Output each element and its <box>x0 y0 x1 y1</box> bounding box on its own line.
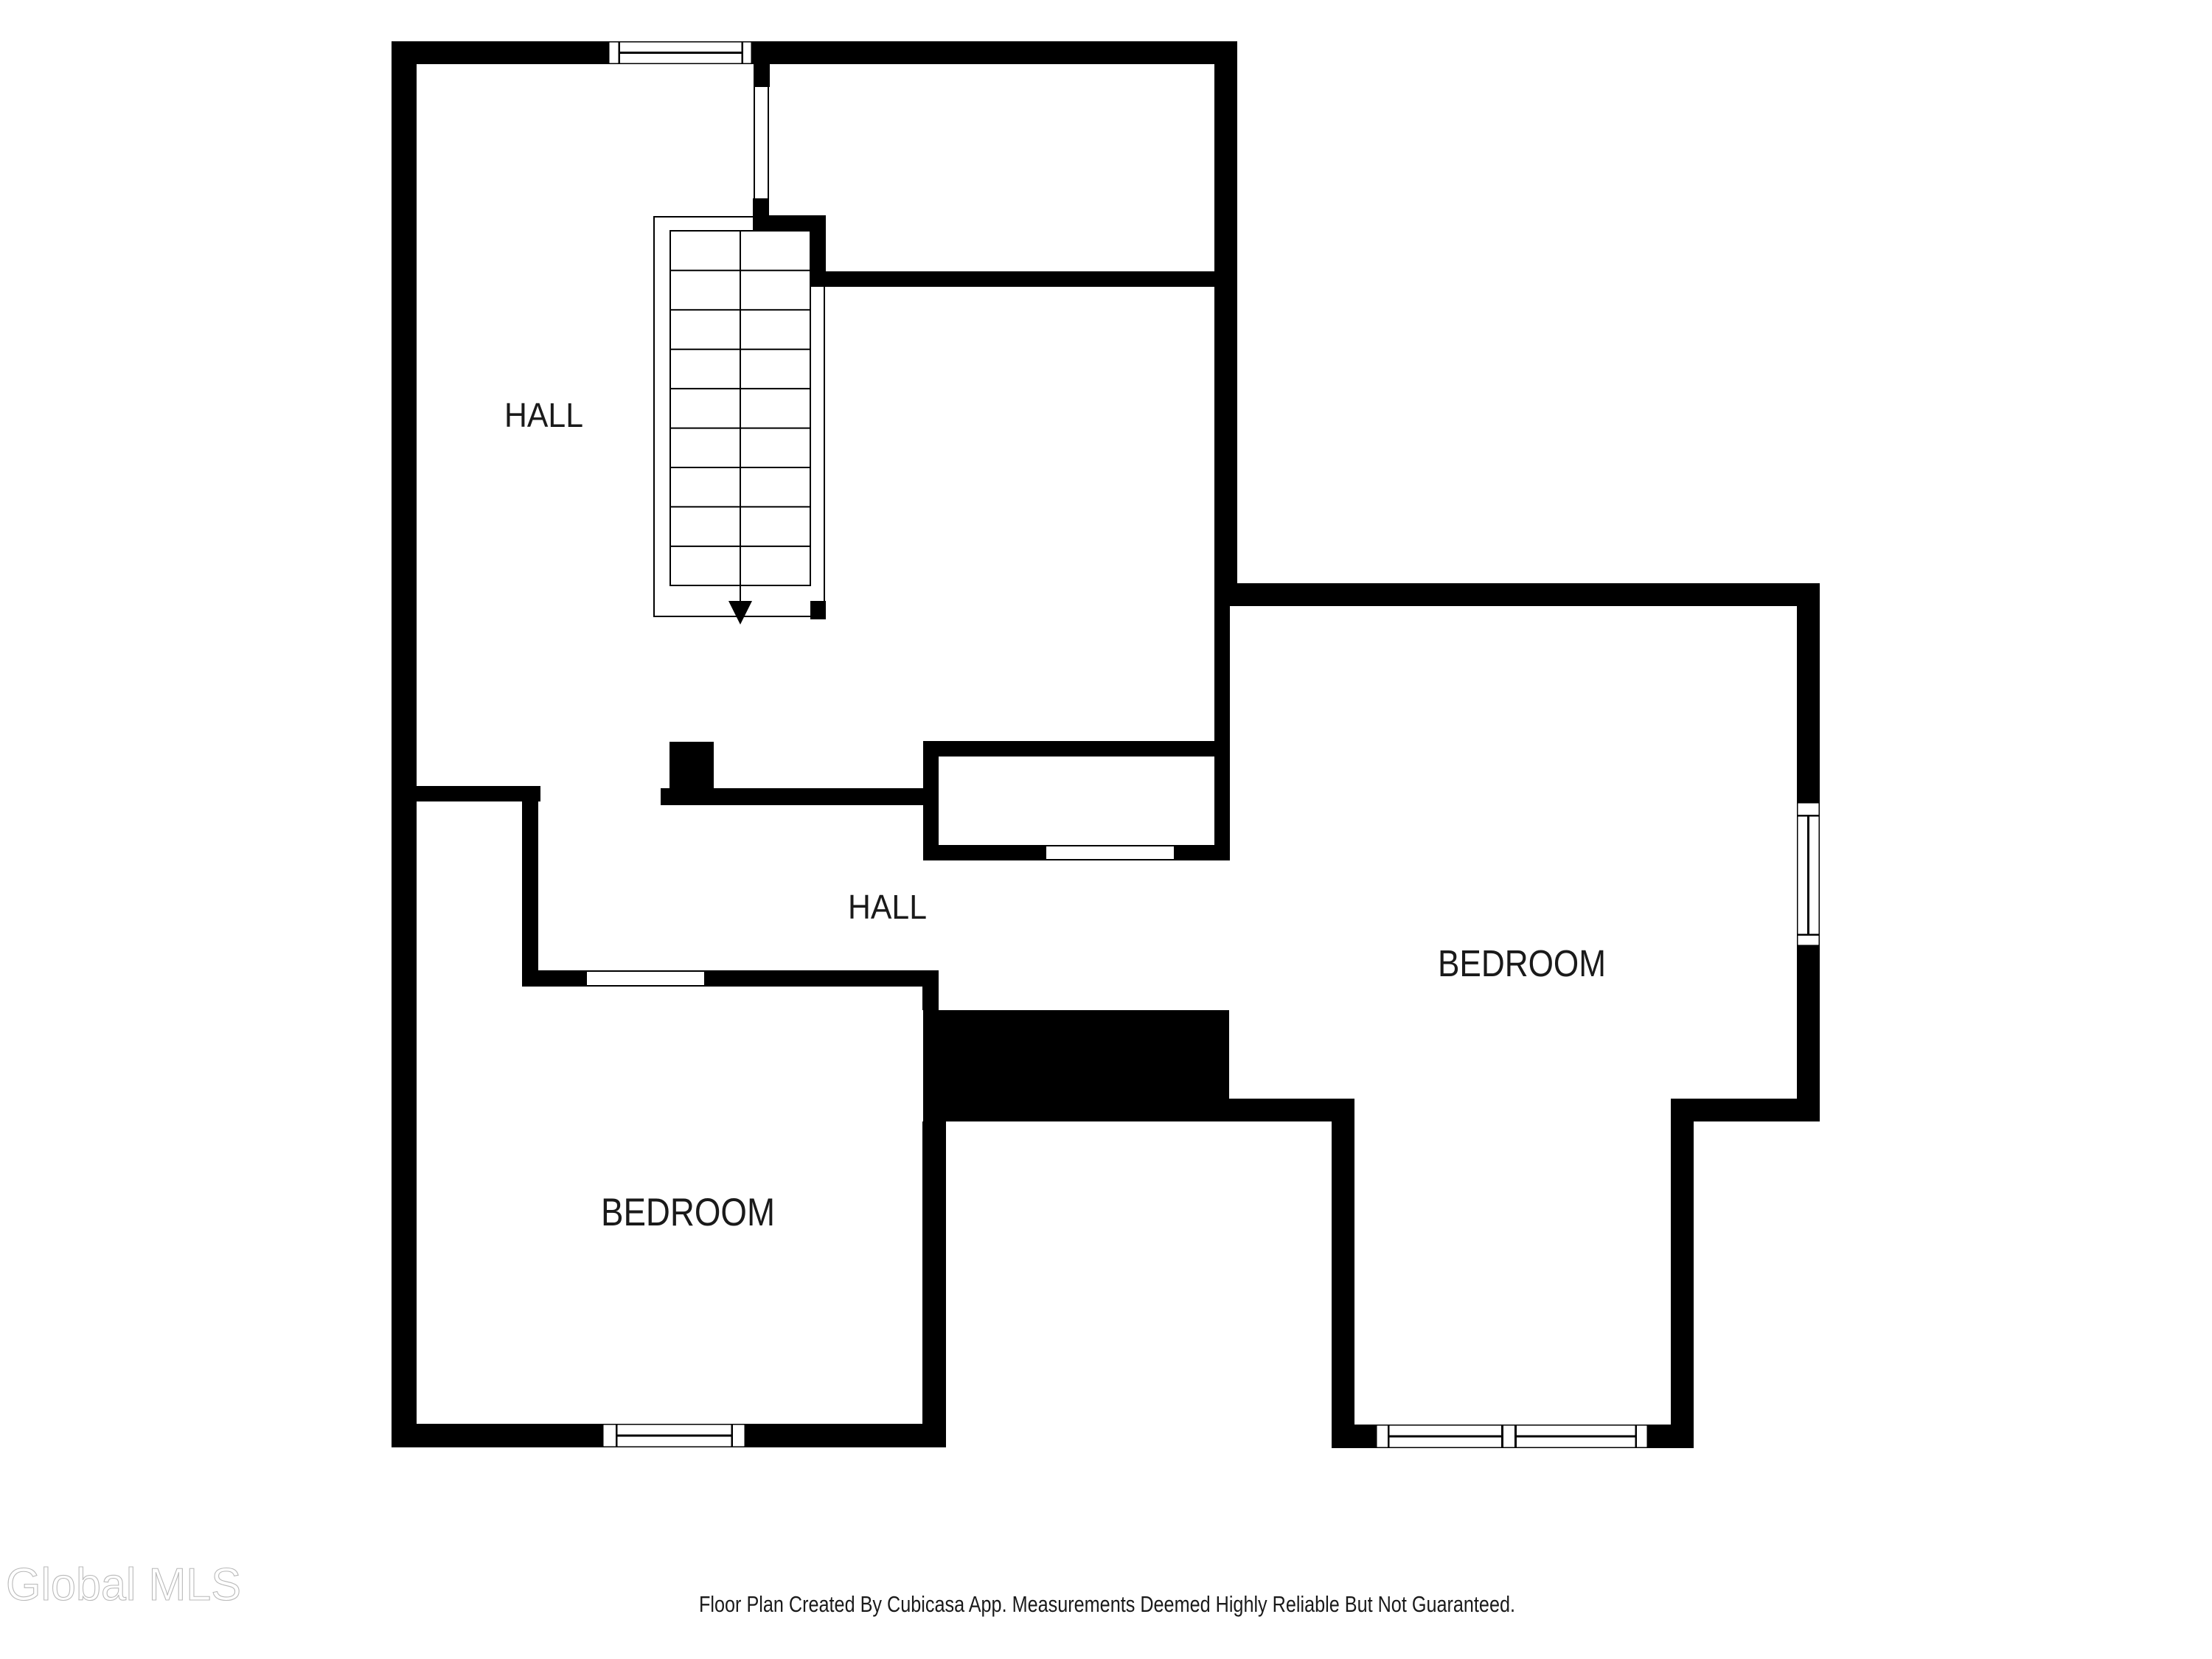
svg-text:HALL: HALL <box>848 888 927 926</box>
svg-text:BEDROOM: BEDROOM <box>1438 942 1606 984</box>
svg-text:Global MLS: Global MLS <box>6 1559 241 1610</box>
svg-text:HALL: HALL <box>504 396 583 434</box>
svg-text:Floor Plan Created By Cubicasa: Floor Plan Created By Cubicasa App. Meas… <box>699 1591 1515 1617</box>
svg-text:BEDROOM: BEDROOM <box>601 1191 775 1234</box>
